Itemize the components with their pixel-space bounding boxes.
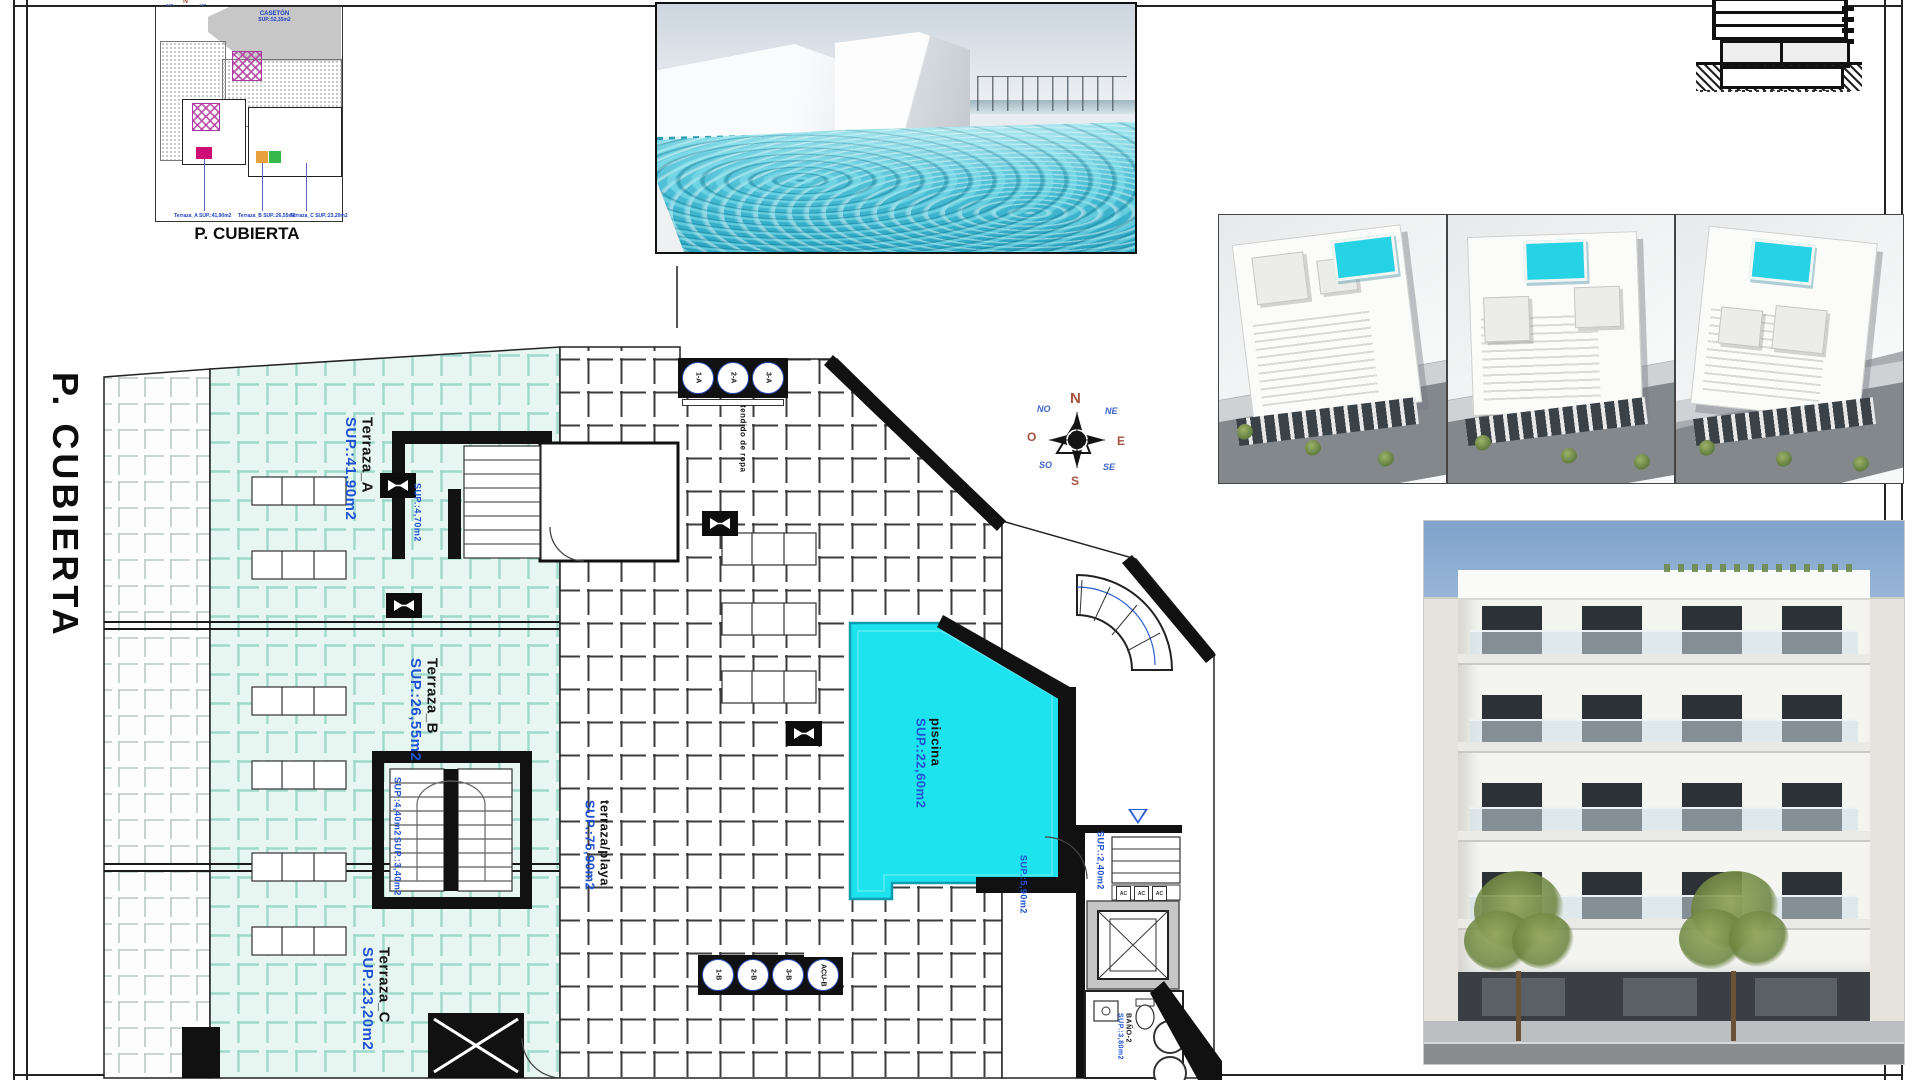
key-plan-leader-1 [204,159,205,211]
label-terraza-b: Terraza_B SUP.:26,55m2 [407,658,440,761]
render-balcony-slab [1458,831,1871,842]
aerial-roof-volume [1484,296,1531,342]
aerial-render-3 [1675,214,1904,484]
roof-floor-plan: 1-A 2-A 3-A 1-B 2-B 3-B ACU-B AC AC AC T… [92,325,1222,1080]
tree-foliage [1512,913,1574,969]
render-balcony-slab [1458,742,1871,753]
aerial-tree [1378,451,1394,467]
ac-units: AC AC AC [1116,886,1167,901]
neighbor-building-left [1424,597,1458,1021]
aerial-tree [1475,435,1491,451]
water-tanks-top: 1-A 2-A 3-A [678,358,788,398]
section-basement-room [1720,66,1844,89]
key-plan-chip-orange [256,151,268,163]
render-roof-plants [1664,564,1854,572]
label-piscina: piscina SUP.:22,60m2 [914,718,942,808]
ac-unit: AC [1134,886,1149,901]
aerial-roof-hatch [1252,307,1379,406]
label-sup-solarium: SUP.:5,90m2 [1018,855,1027,914]
render-floor-4 [1458,602,1871,676]
key-unit-label-a: Terraza_A SUP.:41,90m2 [174,213,231,219]
aerial-roof-volume [1251,251,1309,305]
key-plan-caption: P. CUBIERTA [147,224,347,244]
label-tendido-ropa: tendido de ropa [738,405,746,473]
drawing-sheet: { "sheet": { "side_title": "P. CUBIERTA"… [0,0,1920,1080]
reference-line [676,266,678,328]
aerial-building-mass [1467,231,1643,416]
tank-circle: 1-A [682,362,714,394]
label-sup-stair-top: SUP.:4,70m2 [412,483,421,542]
tank-circle: ACU-B [807,959,839,991]
tank-circle: 3-A [752,362,784,394]
key-plan-leader-3 [306,163,307,211]
render-roof-volume [835,32,970,142]
tank-circle: 1-B [702,959,734,991]
label-bano: BAÑO-2 SUP.:3,80m2 [1116,1013,1132,1060]
key-unit-label-b: Terraza_B SUP.:26,55m2 [238,213,296,219]
label-terraza-c: Terraza_C SUP.:23,20m2 [359,947,392,1050]
ac-unit: AC [1116,886,1131,901]
pool-photo-render [655,2,1137,254]
sheet-border-left-inner [26,0,28,1080]
section-balconies [1842,0,1854,44]
tank-circle: 3-B [772,959,804,991]
key-roof-sup: SUP.:52,35m2 [208,17,341,23]
render-parapet [1458,570,1871,600]
render-floor-3 [1458,690,1871,764]
label-terraza-a: Terraza_A SUP.:41,90m2 [342,417,375,520]
floor-plan-drawing [92,325,1222,1080]
aerial-tree [1776,451,1792,467]
aerial-building-mass [1690,225,1878,421]
render-railing [977,76,1127,111]
facade-photo-render [1423,520,1905,1065]
label-sup-stair-mid-a: SUP.:4,40m2 [392,777,401,836]
tank-shelf [804,951,852,957]
key-site-plan: N S E O NE NO SE SO CASETÓN SUP.:52,35m2… [147,0,347,250]
key-plan-outline: CASETÓN SUP.:52,35m2 Terraza_A SUP.:41,9… [155,6,343,222]
key-plan-leader-2 [262,163,263,211]
label-sup-stair-right: SUP.:2,40m2 [1095,831,1104,890]
aerial-render-1 [1218,214,1447,484]
ac-unit: AC [1152,886,1167,901]
neighbor-building-right [1870,597,1904,1021]
aerial-roof-pool [1524,239,1588,283]
aerial-building-mass [1231,224,1421,422]
tank-circle: 2-A [717,362,749,394]
label-terraza-playa: terraza/playa SUP.:75,90m2 [583,800,611,890]
key-plan-roof-area: CASETÓN SUP.:52,35m2 [208,7,341,61]
render-pool-water [657,122,1135,252]
stair-direction-arrow [1128,809,1148,824]
aerial-render-2 [1447,214,1676,484]
tree-foliage [1729,911,1789,967]
key-plan-shaft-1 [232,51,262,81]
key-plan-shaft-2 [192,103,220,131]
tank-shelf [682,399,784,406]
section-floors [1712,0,1848,40]
label-sup-stair-mid-b: SUP.:3,40m2 [392,837,401,896]
aerial-tree [1634,454,1650,470]
tank-circle: 2-B [737,959,769,991]
key-plan-chip-magenta [196,147,212,159]
section-base-line [1700,90,1850,92]
aerial-roof-pool [1331,233,1399,282]
aerial-roof-pool [1748,238,1815,286]
tree-trunk [1516,971,1521,1041]
aerial-render-strip [1218,214,1904,484]
aerial-roof-volume [1771,305,1828,355]
key-unit-label-c: Terraza_C SUP.:23,20m2 [290,213,348,219]
tree-trunk [1731,971,1736,1041]
water-tanks-bottom: 1-B 2-B 3-B ACU-B [698,955,843,995]
street-tree [1679,871,1789,1041]
street-tree [1464,871,1574,1041]
sheet-border-left-outer [13,0,15,1080]
render-road [1424,1042,1904,1065]
key-plan-chip-green [269,151,281,163]
render-balcony-slab [1458,654,1871,665]
sheet-side-title: P. CUBIERTA [44,372,86,642]
building-section-thumb [1690,0,1868,94]
aerial-roof-volume [1574,286,1621,328]
render-floor-2 [1458,779,1871,853]
aerial-roof-volume [1718,306,1764,348]
